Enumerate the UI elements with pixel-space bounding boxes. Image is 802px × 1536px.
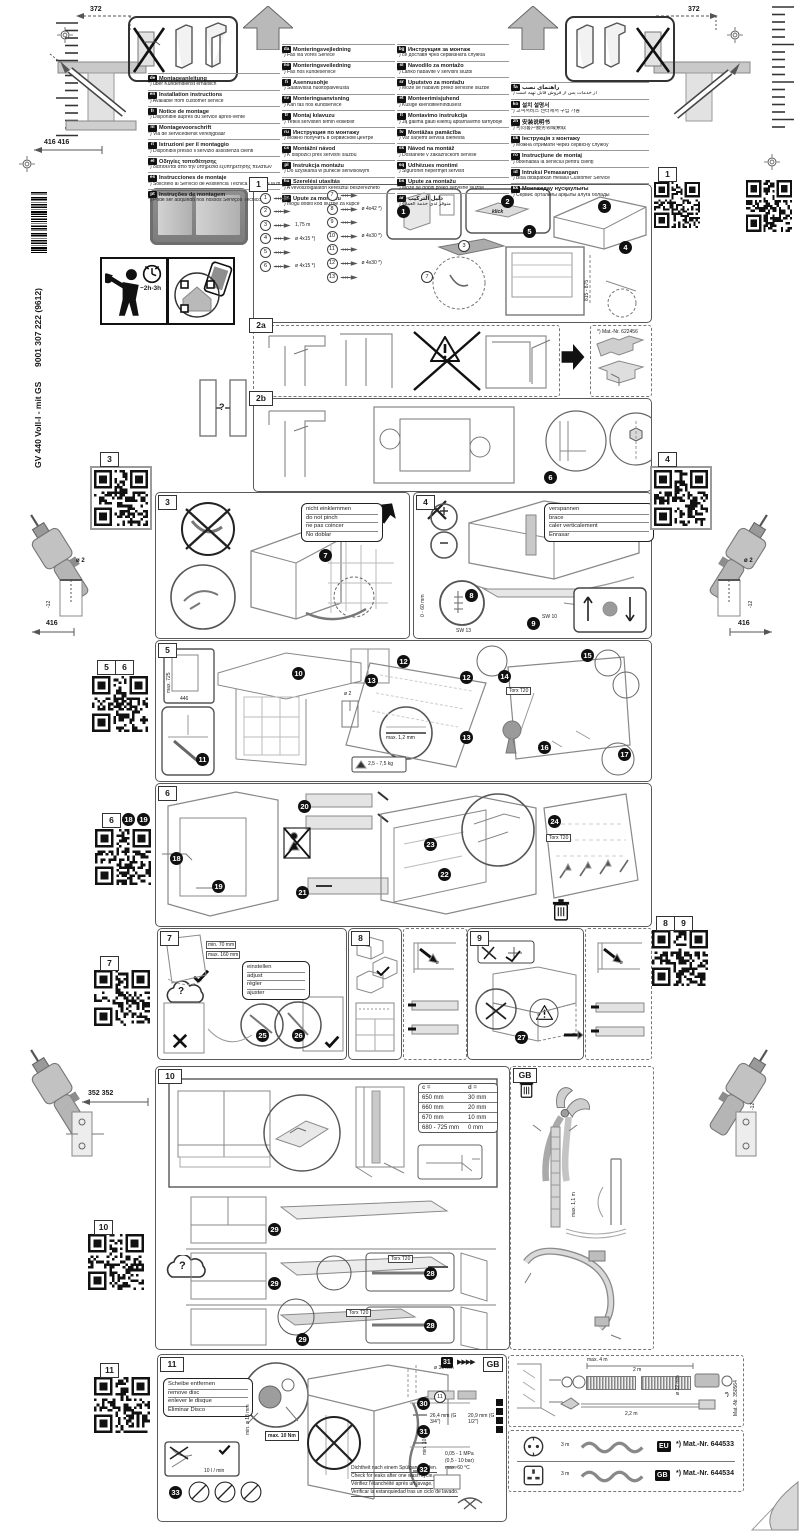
step-4-tag: 4 (416, 495, 435, 510)
language-code-badge: lv (397, 129, 406, 136)
language-title: Intruksi Pemasangan (522, 170, 578, 176)
dim-352-352: 352 352 (88, 1090, 113, 1097)
language-note: *) Можно получить в сервисном центре (282, 136, 395, 142)
language-title: Monteerimisjuhend (408, 96, 459, 102)
parts-list-item: 13 (327, 272, 391, 283)
step-badge: 29 (268, 1223, 281, 1236)
language-title: Инструкция по монтажу (293, 130, 359, 136)
qr-code-8-9 (652, 930, 708, 986)
option-b-box (585, 928, 652, 1060)
divider (517, 1461, 735, 1462)
step-7-box: ? min. 70 mm max. 160 mm einstellenadjus… (157, 928, 347, 1060)
step-badge: 19 (212, 880, 225, 893)
language-title: Монтаждау нұсқаулығы (522, 186, 589, 192)
language-code-badge: ro (511, 153, 520, 160)
language-code-badge: fa (511, 84, 520, 91)
hinge-bracket-sketch (62, 1108, 108, 1166)
parts-list-item: 9 (327, 217, 391, 228)
dim-line (78, 1098, 152, 1106)
dim-416-416: 416 416 (44, 139, 69, 146)
language-note: *) διατίθενται από την υπηρεσία εξυπηρέτ… (148, 165, 280, 171)
step-badge: 13 (460, 731, 473, 744)
register-mark-icon (764, 154, 780, 170)
clock-icon (142, 264, 162, 284)
language-title: Montagevoorschrift (159, 125, 211, 131)
language-entry: slNavodilo za montažo*) Lahko nabavite v… (397, 61, 509, 78)
step-9-tag: 9 (470, 931, 489, 946)
step-badge: 20 (298, 800, 311, 813)
part-label: ø 4x30 *) (362, 233, 382, 239)
language-title: Installation instructions (159, 92, 222, 98)
language-code-badge: et (397, 96, 406, 103)
part-number: 5 (260, 247, 271, 258)
language-note: *) се доставя чрез сервизната служба (397, 53, 509, 59)
parts-list-item: 5 (260, 247, 324, 258)
language-entry: ltMontavimo instrukcija*) Ją galima gaut… (397, 110, 509, 127)
note-line: régler (247, 981, 305, 990)
table-header-d: d = (468, 1085, 494, 1091)
qr-code-4 (650, 466, 712, 530)
hardware-icon (340, 192, 360, 199)
step-10-tag: 10 (158, 1069, 182, 1084)
step-badge: 33 (169, 1486, 182, 1499)
language-note: *) Sigurohet nëpërmjet servisit (397, 169, 509, 175)
dim-bar: (0,5 - 10 bar) (445, 1458, 474, 1464)
step-2b-tag: 2b (249, 391, 273, 406)
language-entry: bsUpute za montažu*) Može se dobiti prek… (397, 177, 509, 194)
dim-c: 650 mm (422, 1095, 468, 1101)
dim-depth-right-2: -12 (750, 1088, 756, 1110)
parts-list-item: 6ø 4x15 *) (260, 261, 324, 272)
hardware-icon (340, 274, 360, 281)
language-note: *) Küsige klienditeenindusest (397, 103, 509, 109)
language-entry: etMonteerimisjuhend*) Küsige klienditeen… (397, 94, 509, 111)
qr-4-tag: 4 (658, 452, 677, 467)
note-line: caler verticalement (549, 523, 649, 532)
language-code-badge: sv (282, 96, 291, 103)
cloud-question: ? (178, 986, 184, 997)
language-note: *) Fås via vores Service (282, 53, 395, 59)
step-badge: 11 (196, 753, 209, 766)
cable-icon (579, 1468, 647, 1485)
language-title: Navodilo za montažo (408, 63, 464, 69)
part-number: 2 (260, 206, 271, 217)
socket-eu-icon (523, 1436, 544, 1457)
ruler-right (772, 4, 798, 134)
step-2a-box (253, 325, 560, 397)
language-code-badge: it (148, 142, 157, 149)
note-line: Vérifiez l'étanchéité après un lavage. (351, 1481, 433, 1489)
register-mark-icon (19, 156, 35, 172)
step-3-tag: 3 (158, 495, 177, 510)
dim-446: 446 (180, 696, 188, 702)
part-number: 3 (260, 220, 271, 231)
dim-c: 670 mm (422, 1115, 468, 1121)
barcode (31, 192, 47, 254)
qr-scan-box (167, 257, 235, 325)
torx-label: Torx T20 (388, 1255, 413, 1263)
dim-line (30, 146, 106, 154)
drill-depth-sketch (714, 574, 742, 620)
language-title: Monteringsanvisning (293, 96, 349, 102)
language-code-badge: pl (282, 162, 291, 169)
dim-dia22: ø 22 mm (675, 1373, 681, 1395)
language-code-badge: nl (148, 125, 157, 132)
qr-8-tag: 8 (656, 916, 675, 931)
language-title: Montāžas pamācība (408, 130, 461, 136)
language-title: Notice de montage (159, 109, 209, 115)
cable-icon (579, 1439, 647, 1456)
star-ref: *) (725, 1392, 729, 1398)
language-title: Інструкція з монтажу (522, 136, 580, 142)
hardware-icon (340, 233, 360, 240)
step-badge: 21 (296, 886, 309, 899)
language-entry: lvMontāžas pamācība*) Var saņemt servisa… (397, 127, 509, 144)
dim-d: 0 mm (468, 1125, 494, 1131)
step-badge: 31 (417, 1425, 430, 1438)
eu-badge: EU (657, 1441, 671, 1452)
power-cord-box: 3 m EU *) Mat.-Nr. 644533 3 m GB *) Mat.… (508, 1430, 744, 1492)
dim-max-gap: max. 1,2 mm (386, 735, 415, 741)
language-title: Montaj kılavuzu (293, 113, 335, 119)
dim-mpa: 0,05 - 1 MPa (445, 1451, 474, 1457)
language-title: راهنمای نصب (522, 85, 559, 91)
parts-list-item: 11 (327, 244, 391, 255)
step-9-box: 27 (467, 928, 584, 1060)
step-badge: 24 (548, 815, 561, 828)
part-label: ø 4x42 *) (362, 206, 382, 212)
drill-depth-sketch (56, 574, 84, 620)
note-line: do not pinch (306, 515, 378, 524)
qr-code-11 (94, 1377, 150, 1433)
language-code-badge: es (148, 175, 157, 182)
language-note: *) K dispozici přes servisní službu (282, 153, 395, 159)
hardware-icon (340, 260, 360, 267)
language-code-badge: fi (282, 79, 291, 86)
cloud-question: ? (179, 1260, 186, 1272)
dim-d: 20 mm (468, 1105, 494, 1111)
qr-3-tag: 3 (100, 452, 119, 467)
step-badge: 8 (465, 589, 478, 602)
dim-g34: 26,4 mm (G 3/4") (430, 1413, 466, 1425)
gb-badge: GB (655, 1470, 670, 1481)
language-entry: itIstruzioni per il montaggio*) Disponib… (148, 139, 280, 156)
step-badge: 23 (424, 838, 437, 851)
qr-7-tag: 7 (100, 956, 119, 971)
note-line: brace (549, 515, 649, 524)
step-badge: 22 (438, 868, 451, 881)
step-badge: 15 (581, 649, 594, 662)
dim-372-right: 372 (688, 6, 700, 13)
language-note: *) Можна отримати через сервісну службу (511, 143, 649, 149)
part-number: 6 (260, 261, 271, 272)
note-remove-disc: Scheibe entfernenremove discenlever le d… (163, 1378, 253, 1417)
qr-code-6 (95, 829, 151, 885)
step-badge: 28 (424, 1267, 437, 1280)
language-note: *) obtenabilă la serviciul pentru clienţ… (511, 160, 649, 166)
language-note: *) Available from customer service (148, 99, 280, 105)
eu-mat-number: *) Mat.-Nr. 644533 (676, 1441, 734, 1448)
note-line: verspannen (549, 506, 649, 515)
step-6-box: 18 19 20 21 23 22 24 Torx T20 (155, 783, 652, 927)
language-title: Istruzioni per il montaggio (159, 142, 229, 148)
language-code-badge: sk (397, 146, 406, 153)
qr-5-tag: 5 (97, 660, 116, 675)
panel-profile-warning-box-right (565, 16, 675, 82)
step-badge: 9 (527, 617, 540, 630)
qr-9-tag: 9 (674, 916, 693, 931)
page-curl (742, 1480, 800, 1532)
language-title: Instrukcja montażu (293, 163, 344, 169)
step-badge: 18 (170, 852, 183, 865)
step-badge: 28 (424, 1319, 437, 1332)
language-entry: faراهنمای نصب*) از خدمات پس از فروش قابل… (511, 82, 649, 99)
language-title: Návod na montáž (408, 146, 454, 152)
plinth-table: c =d = 650 mm30 mm660 mm20 mm670 mm10 mm… (418, 1083, 498, 1133)
part-ref: 3 (458, 240, 470, 252)
step-10-box: ? c =d = 650 mm30 mm660 mm20 mm670 mm10 … (155, 1066, 510, 1350)
dim-2m: 2 m (633, 1367, 641, 1373)
dim-dia2-right: ø 2 (744, 558, 753, 564)
dim-max-4m: max. 4 m (587, 1357, 608, 1363)
qr-code-3 (90, 466, 152, 530)
step-11-box: Scheibe entfernenremove discenlever le d… (157, 1354, 507, 1522)
installer-time-box: ~2h-3h (100, 257, 168, 325)
torx-label: Torx T20 (346, 1309, 371, 1317)
qr-1-tag: 1 (658, 167, 677, 182)
dim-g12: 20,9 mm (G 1/2") (468, 1413, 502, 1425)
language-note: *) Može se nabaviti preko servisne služb… (397, 86, 509, 92)
install-time: ~2h-3h (140, 285, 161, 292)
language-entry: svMonteringsanvisning*) Kan fås hos kund… (282, 94, 395, 111)
step-badge: 5 (523, 225, 536, 238)
installation-sheet: 372 372 416 416 (0, 0, 802, 1536)
leak-check-note: Dichtheit nach einem Spülgang prüfen.Che… (351, 1465, 458, 1497)
torx-label: Torx T20 (546, 834, 571, 842)
qr-code-10 (88, 1234, 144, 1290)
qr-11-tag: 11 (100, 1363, 119, 1378)
part-label: ø 4x30 *) (362, 260, 382, 266)
language-entry: deMontageanleitung*) über Kundendienst e… (148, 73, 280, 90)
dim-416-left: 416 (46, 620, 58, 627)
part-label: ø 4x15 *) (295, 236, 315, 242)
language-entry: kkМонтаждау нұсқаулығы*) Сервис орталығы… (511, 183, 649, 200)
language-code-badge: sr (397, 79, 406, 86)
language-code-badge: uk (511, 136, 520, 143)
language-title: Monteringsveiledning (293, 63, 351, 69)
note-line: Eliminar Disco (168, 1407, 248, 1415)
language-entry: nlMontagevoorschrift*) Via de servicedie… (148, 123, 280, 140)
language-note: *) Dostanete v zákazníckom servise (397, 153, 509, 159)
step-8-tag: 8 (351, 931, 370, 946)
qr-10-tag: 10 (94, 1220, 113, 1235)
language-note: *) از خدمات پس از فروش قابل تهیه است (511, 91, 649, 97)
table-header-c: c = (422, 1085, 468, 1091)
language-entry: arدليل التركيب*) متوفر لدى خدمة العملاء (397, 193, 509, 210)
language-entry: enInstallation instructions*) Available … (148, 90, 280, 107)
language-note: *) Saatavissa huoltopalvelusta (282, 86, 395, 92)
dim-c: 680 - 725 mm (422, 1125, 468, 1131)
language-code-badge: ko (511, 101, 520, 108)
step-4-box: 8 9 verspannenbracecaler verticalementEn… (413, 492, 652, 639)
dim-416-right: 416 (738, 620, 750, 627)
gb-ref-badge: 31 (441, 1357, 453, 1368)
language-code-badge: sq (397, 162, 406, 169)
language-code-badge: tr (282, 113, 291, 120)
qr-ref-badge: 19 (137, 813, 150, 826)
qr-6b-tag: 6 (102, 813, 121, 828)
language-note: *) Može se dobiti preko servisne službe (397, 186, 509, 192)
language-title: Montavimo instrukcija (408, 113, 467, 119)
language-code-badge: pt (148, 191, 157, 198)
doc-number: 9001 307 222 (9612) (33, 272, 43, 367)
dim-min18: min. ø 18 mm (245, 1383, 251, 1435)
next-arrow-icon (561, 344, 585, 370)
gap-question: ? (219, 402, 225, 412)
gb-mat-number: *) Mat.-Nr. 644534 (676, 1470, 734, 1477)
qr-code-1b (746, 180, 792, 232)
register-mark-icon (57, 27, 73, 43)
hardware-icon (273, 263, 293, 270)
language-note: *) 可向客户服务领域索取 (511, 126, 649, 132)
step-3-box: 7 nicht einklemmendo not pinchne pas coi… (155, 492, 410, 639)
dim-d: 10 mm (468, 1115, 494, 1121)
step-1-tag: 1 (249, 177, 268, 192)
language-title: Инструкция за монтаж (408, 47, 470, 53)
language-title: 설치 설명서 (522, 101, 549, 109)
language-entry: srUputstvo za montažu*) Može se nabaviti… (397, 77, 509, 94)
model-number: GV 440 Voll-I - mit GS (33, 368, 43, 468)
dim-torque: max. 10 Nm (265, 1431, 299, 1441)
part-number: 4 (260, 233, 271, 244)
language-code-badge: ar (397, 195, 406, 202)
part-label: 1,75 m (295, 222, 310, 228)
language-note: *) Var saņemt servisa dienestā (397, 136, 509, 142)
step-badge: 12 (397, 655, 410, 668)
note-adjust: einstellenadjustréglerajuster (242, 961, 310, 1000)
part-number: 8 (327, 204, 338, 215)
language-entry: ruИнструкция по монтажу*) Можно получить… (282, 127, 395, 144)
language-title: Upute za montažu (408, 179, 456, 185)
step-badge: 13 (365, 674, 378, 687)
note-line: remove disc (168, 1390, 248, 1399)
language-entry: noMonteringsveiledning*) Fås hos kundese… (282, 61, 395, 78)
part-number: 1 (260, 193, 271, 204)
table-row: 660 mm20 mm (419, 1102, 497, 1112)
language-entry: ko설치 설명서*) 고객서비스 센터에서 구입 가능 (511, 99, 649, 117)
note-line: No doblar (306, 532, 378, 540)
parts-list-item: 2 (260, 206, 324, 217)
language-note: *) Bisa didapatkan melalui Customer Serv… (511, 176, 649, 182)
niche-height: 815 - 875 (584, 261, 590, 301)
note-line: enlever le disque (168, 1398, 248, 1407)
gb-box-tag: GB (513, 1068, 537, 1083)
language-column-2: daMonteringsvejledning*) Fås via vores S… (282, 44, 395, 210)
language-column-3: bgИнструкция за монтаж*) се доставя чрез… (397, 44, 509, 210)
language-title: Instrucţiune de montaj (522, 153, 582, 159)
language-title: دليل التركيب (408, 196, 443, 202)
step-badge: 25 (256, 1029, 269, 1042)
language-entry: zh安装说明书*) 可向客户服务领域索取 (511, 116, 649, 134)
hardware-icon (273, 208, 293, 215)
dim-c: 660 mm (422, 1105, 468, 1111)
step-badge: 16 (538, 741, 551, 754)
hose-extension-box: max. 4 m 2 m 2,2 m ø 22 mm *) Mat.-Nr. 3… (508, 1355, 744, 1427)
klick-label: klick (492, 209, 503, 215)
language-title: Udhëzues montimi (408, 163, 458, 169)
dim-max725: max. 725 (166, 657, 172, 693)
step-badge: 2 (501, 195, 514, 208)
language-note: *) Сервис орталығы арқылы алуға болады (511, 193, 649, 199)
table-row: 650 mm30 mm (419, 1092, 497, 1102)
language-title: Instrucciones de montaje (159, 175, 226, 181)
language-note: *) 고객서비스 센터에서 구입 가능 (511, 109, 649, 115)
gb-ref-arrows: ▶▶▶▶ (457, 1358, 475, 1366)
step-7-tag: 7 (160, 931, 179, 946)
cord-length-gb: 3 m (561, 1471, 569, 1477)
plinth-table-rows: 650 mm30 mm660 mm20 mm670 mm10 mm680 - 7… (419, 1092, 497, 1132)
part-ref: 11 (434, 1391, 446, 1403)
language-entry: roInstrucţiune de montaj*) obtenabilă la… (511, 150, 649, 167)
option-a-box (403, 928, 467, 1060)
parts-list-item: 7 (327, 190, 391, 201)
language-code-badge: no (282, 63, 291, 70)
language-code-badge: bs (397, 179, 406, 186)
language-note: *) Ją galima gauti klientų aptarnavimo t… (397, 120, 509, 126)
note-brace: verspannenbracecaler verticalementEnrasa… (544, 503, 654, 542)
language-code-badge: fr (148, 108, 157, 115)
language-code-badge: hu (282, 179, 291, 186)
note-line: Enrasar (549, 532, 649, 540)
gb-box: max. 1,1 m (510, 1066, 654, 1350)
parts-list-item: 31,75 m (260, 220, 324, 231)
parts-list-item: 10ø 4x30 *) (327, 231, 391, 242)
hardware-icon (340, 206, 360, 213)
part-number: 9 (327, 217, 338, 228)
part-number: 7 (327, 190, 338, 201)
language-title: Uputstvo za montažu (408, 80, 464, 86)
language-code-badge: da (282, 46, 291, 53)
step-5-box: 10 11 12 13 12 13 14 15 16 17 max. 725 4… (155, 640, 652, 782)
language-entry: sqUdhëzues montimi*) Sigurohet nëpërmjet… (397, 160, 509, 177)
hardware-icon (273, 235, 293, 242)
language-title: Montageanleitung (159, 76, 207, 82)
dim-line (726, 628, 776, 636)
dim-max160: max. 160 mm (206, 951, 240, 959)
language-title: Monteringsvejledning (293, 47, 351, 53)
dim-22m: 2,2 m (625, 1411, 638, 1417)
language-code-badge: de (148, 75, 157, 82)
step-badge: 29 (268, 1277, 281, 1290)
step-5-tag: 5 (158, 643, 177, 658)
language-entry: csMontážní návod*) K dispozici přes serv… (282, 143, 395, 160)
step-badge: 6 (544, 471, 557, 484)
part-number: 12 (327, 258, 338, 269)
hardware-icon (340, 219, 360, 226)
dim-min70: min. 70 mm (206, 941, 236, 949)
language-entry: elΟδηγίες τοποθέτησης*) διατίθενται από … (148, 156, 280, 173)
dim-372-left: 372 (90, 6, 102, 13)
dim-weight: 2,5 - 7,5 kg (368, 761, 393, 767)
parts-list-item: 1 (260, 193, 324, 204)
step-badge: 29 (296, 1333, 309, 1346)
hose-mat-number: Mat.-Nr. 350564 (733, 1368, 739, 1416)
language-code-badge: sl (397, 63, 406, 70)
language-title: Asennusohje (293, 80, 328, 86)
dim-sw13: SW 13 (456, 628, 471, 634)
language-code-badge: zh (511, 119, 520, 126)
language-code-badge: lt (397, 113, 406, 120)
